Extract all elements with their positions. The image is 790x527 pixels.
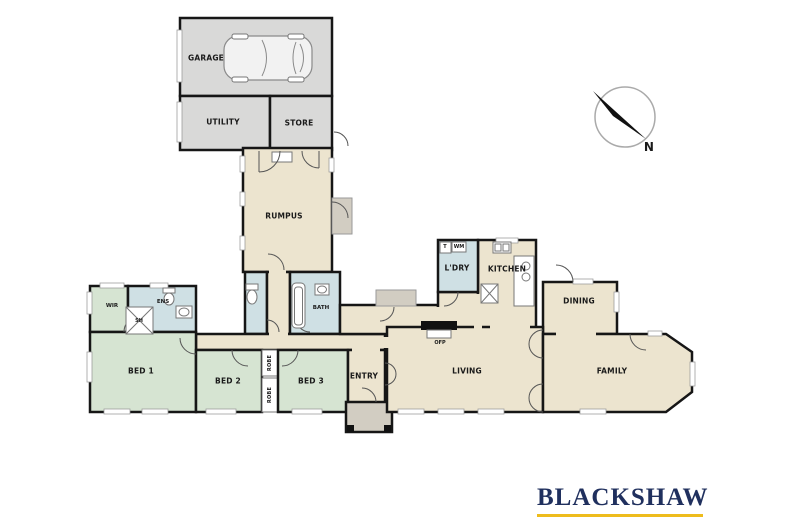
label-robe-bed2: ROBE bbox=[267, 355, 273, 371]
label-kitchen: KITCHEN bbox=[488, 265, 526, 274]
label-bath: BATH bbox=[313, 305, 329, 311]
label-bed3: BED 3 bbox=[298, 377, 324, 386]
label-laundry: L'DRY bbox=[444, 264, 469, 273]
label-laundry-tub: T bbox=[443, 244, 446, 250]
floorplan-canvas: GARAGE UTILITY STORE RUMPUS L'DRY KITCHE… bbox=[0, 0, 790, 527]
label-utility: UTILITY bbox=[206, 118, 240, 127]
hall-vertical bbox=[267, 272, 290, 334]
kitchen-sink-icon bbox=[493, 242, 511, 253]
label-bed2: BED 2 bbox=[215, 377, 241, 386]
bath-basin-icon bbox=[315, 284, 329, 295]
agency-logo: BLACKSHAW bbox=[537, 484, 703, 517]
label-entry: ENTRY bbox=[350, 372, 378, 381]
car-icon bbox=[224, 34, 312, 82]
north-step bbox=[376, 290, 416, 306]
pantry-icon bbox=[481, 284, 498, 303]
porch-post bbox=[384, 425, 391, 432]
room-wc bbox=[245, 272, 267, 334]
compass-north-label: N bbox=[644, 140, 654, 154]
wc-toilet-icon bbox=[246, 284, 258, 304]
label-shower: SH bbox=[135, 318, 143, 324]
room-wir bbox=[90, 286, 128, 332]
floorplan-drawing bbox=[0, 0, 790, 527]
label-rumpus: RUMPUS bbox=[265, 212, 303, 221]
room-dining bbox=[543, 282, 617, 334]
label-garage: GARAGE bbox=[188, 54, 224, 63]
compass-icon bbox=[593, 87, 655, 147]
label-dining: DINING bbox=[563, 297, 595, 306]
heater-niche-icon bbox=[272, 152, 292, 162]
label-fireplace: OFP bbox=[434, 340, 445, 346]
bathtub-icon bbox=[292, 283, 305, 328]
label-store: STORE bbox=[285, 119, 314, 128]
label-wir: WIR bbox=[106, 303, 118, 309]
porch-post bbox=[347, 425, 354, 432]
label-living: LIVING bbox=[452, 367, 482, 376]
label-robe-bed3: ROBE bbox=[267, 387, 273, 403]
rumpus-landing bbox=[332, 198, 352, 234]
label-ensuite: ENS bbox=[157, 299, 169, 305]
label-washing-machine: WM bbox=[454, 244, 465, 250]
ensuite-basin-icon bbox=[176, 306, 192, 318]
label-family: FAMILY bbox=[597, 367, 628, 376]
label-bed1: BED 1 bbox=[128, 367, 154, 376]
